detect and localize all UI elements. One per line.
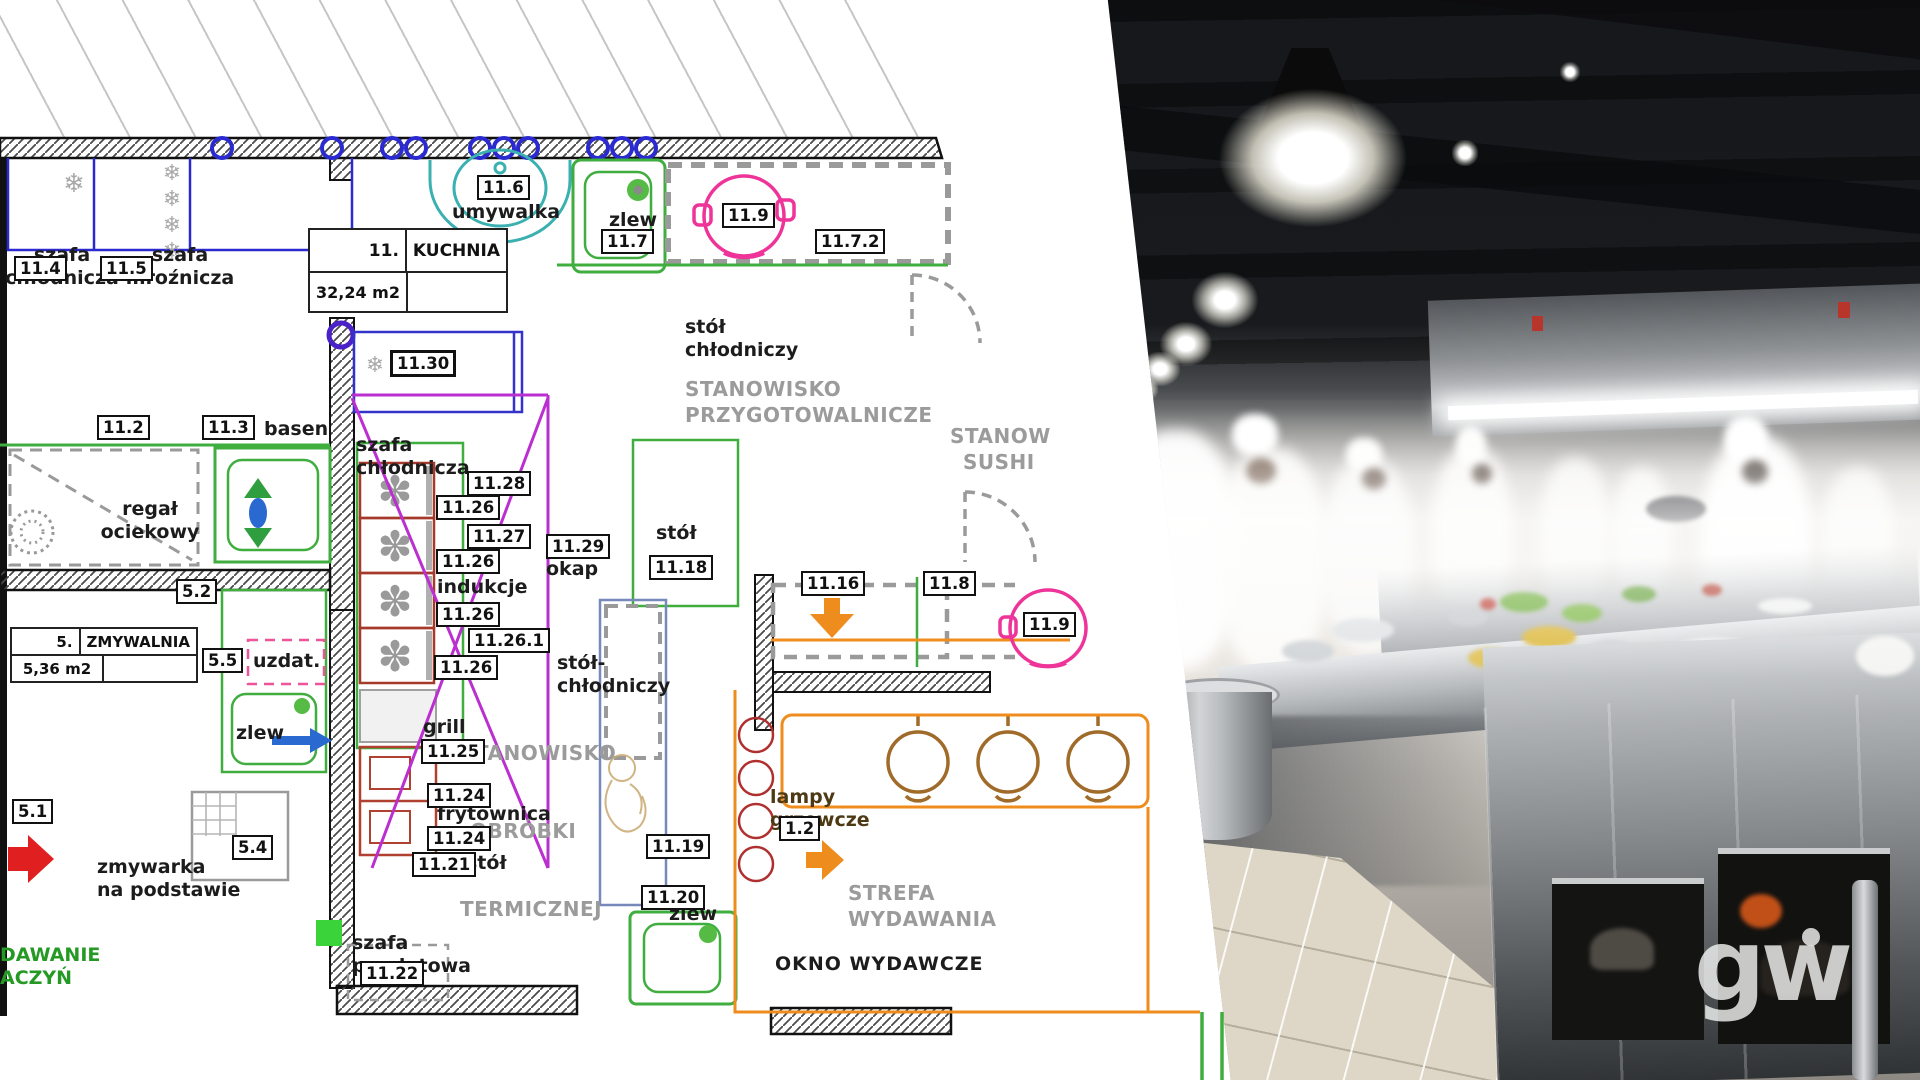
room-tag: 11.25	[421, 739, 485, 764]
room-table-kuchnia: 11. KUCHNIA 32,24 m2	[308, 228, 508, 313]
room-tag: 11.26.1	[468, 628, 550, 653]
door-swing-arcs	[912, 275, 1035, 562]
room-tag: 11.28	[467, 471, 531, 496]
label-zmywarka: zmywarkana podstawie	[97, 810, 240, 948]
basin-11-3	[215, 448, 330, 562]
label-szafa-przelotowa: szafaprzelotowa	[352, 886, 471, 1024]
basin-faucet-icon	[244, 478, 272, 548]
watermark-logo: gw	[1694, 916, 1848, 1016]
room-tag: 11.2	[97, 415, 150, 440]
room-area: 32,24 m2	[310, 273, 408, 311]
room-tag: 5.2	[176, 579, 217, 604]
room-tag: 11.18	[649, 555, 713, 580]
label-stol-chlodniczy-mid: stół-chłodniczy	[557, 606, 670, 744]
room-tag: 11.9	[1023, 612, 1076, 637]
room-name: ZMYWALNIA	[81, 629, 196, 654]
label-umywalka: umywalka	[452, 201, 560, 224]
room-tag: 5.4	[232, 835, 273, 860]
flow-square-green	[316, 920, 342, 946]
room-tag: 11.4	[14, 256, 67, 281]
svg-text:❄: ❄	[366, 353, 384, 378]
room-tag: 11.26	[436, 549, 500, 574]
room-tag: 11.21	[412, 852, 476, 877]
svg-text:❄: ❄	[63, 169, 85, 199]
room-tag: 11.8	[923, 571, 976, 596]
flow-arrow-red	[8, 835, 54, 883]
room-tag: 11.26	[434, 655, 498, 680]
heat-lamp-circles-red	[739, 718, 773, 881]
label-basen: basen	[264, 418, 328, 441]
svg-text:❄: ❄	[163, 161, 181, 186]
room-tag: 11.29	[546, 534, 610, 559]
label-indukcje: indukcje	[437, 576, 527, 599]
room-tag: 11.9	[722, 203, 775, 228]
room-tag: 11.20	[641, 885, 705, 910]
label-uzdat: uzdat.	[253, 650, 320, 673]
room-tag: 11.30	[390, 350, 456, 377]
room-tag: 11.26	[436, 495, 500, 520]
room-tag: 11.5	[100, 256, 153, 281]
room-number: 5.	[12, 629, 81, 654]
room-table-zmywalnia: 5. ZMYWALNIA 5,36 m2	[10, 627, 198, 683]
arrow-down-orange	[810, 598, 854, 638]
room-number: 11.	[310, 230, 407, 271]
room-tag: 11.19	[646, 834, 710, 859]
room-tag: 11.3	[202, 415, 255, 440]
heat-lamps-brown	[888, 716, 1128, 801]
kitchen-plan-collage: gw	[0, 0, 1920, 1080]
room-tag: 11.22	[360, 961, 424, 986]
svg-text:✽: ✽	[377, 632, 412, 681]
label-zlew-zmywalnia: zlew	[236, 722, 284, 745]
label-stol-18: stół	[656, 522, 697, 545]
room-tag: 5.5	[202, 648, 243, 673]
room-tag: 5.1	[12, 799, 53, 824]
watermark-logo-dot	[1802, 928, 1820, 946]
room-tag: 11.26	[436, 602, 500, 627]
room-tag: 11.16	[801, 571, 865, 596]
label-podawanie-naczyn: DAWANIEACZYŃ	[0, 898, 100, 1036]
room-tag: 11.6	[477, 175, 530, 200]
label-okap: okap	[546, 558, 598, 581]
bottom-green-lines	[1202, 1012, 1222, 1080]
label-okno-wydawcze: OKNO WYDAWCZE	[775, 953, 984, 976]
label-grill: grill	[423, 716, 466, 739]
room-name: KUCHNIA	[407, 230, 506, 271]
room-area: 5,36 m2	[12, 656, 104, 681]
room-tag: 1.2	[779, 816, 820, 841]
svg-text:✽: ✽	[377, 577, 412, 626]
room-tag: 11.27	[467, 524, 531, 549]
room-tag: 11.7	[601, 229, 654, 254]
room-tag: 11.7.2	[815, 229, 885, 254]
room-tag: 11.24	[427, 783, 491, 808]
label-regal-ociekowy: regałociekowy	[95, 452, 205, 590]
room-tag: 11.24	[427, 826, 491, 851]
